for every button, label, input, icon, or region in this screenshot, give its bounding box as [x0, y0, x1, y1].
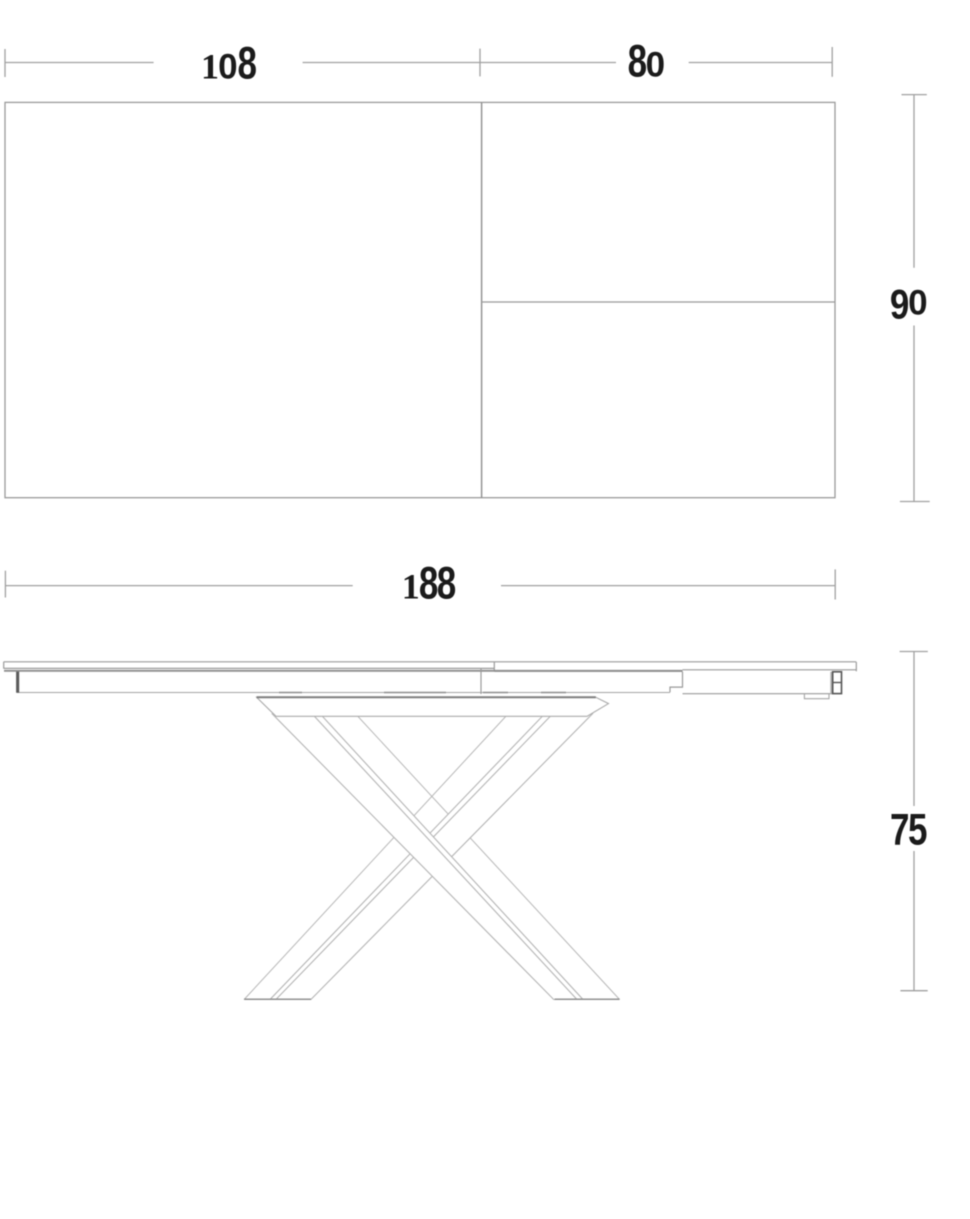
svg-text:1: 1	[201, 46, 219, 86]
svg-text:7: 7	[890, 806, 909, 855]
svg-text:1: 1	[402, 566, 420, 606]
svg-text:8: 8	[437, 557, 456, 609]
svg-text:5: 5	[908, 806, 927, 855]
svg-text:0: 0	[908, 284, 927, 323]
svg-text:8: 8	[419, 557, 438, 609]
svg-text:9: 9	[890, 281, 909, 328]
svg-text:8: 8	[628, 35, 647, 87]
svg-text:0: 0	[646, 46, 665, 85]
svg-text:0: 0	[218, 47, 237, 86]
svg-text:8: 8	[237, 37, 256, 89]
